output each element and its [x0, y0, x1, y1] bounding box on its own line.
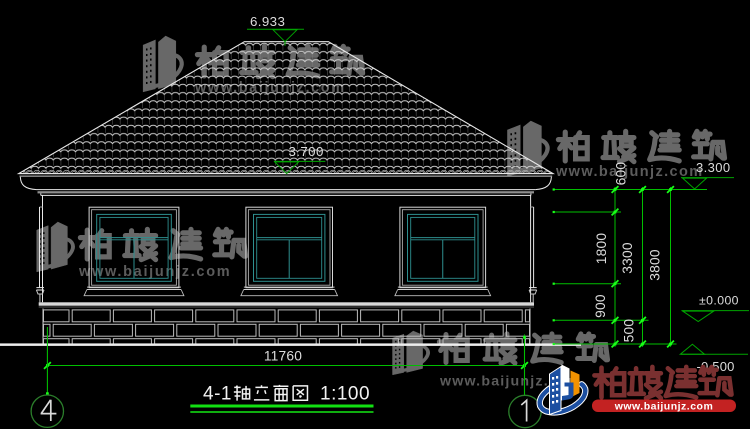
svg-text:500: 500 [622, 319, 637, 343]
svg-text:3.300: 3.300 [696, 160, 731, 175]
svg-text:600: 600 [614, 162, 629, 186]
svg-text:3300: 3300 [620, 242, 635, 274]
svg-text:1:100: 1:100 [320, 384, 370, 405]
svg-text:www.baijunjz.com: www.baijunjz.com [78, 264, 231, 280]
svg-text:4-1: 4-1 [203, 384, 232, 405]
svg-text:www.baijunjz.com: www.baijunjz.com [614, 401, 714, 413]
svg-text:3800: 3800 [648, 249, 663, 281]
svg-text:1800: 1800 [594, 233, 609, 265]
svg-text:11760: 11760 [264, 349, 302, 364]
svg-text:900: 900 [593, 294, 608, 318]
svg-text:6.933: 6.933 [250, 14, 285, 29]
svg-text:3.700: 3.700 [289, 144, 324, 159]
svg-text:±0.000: ±0.000 [699, 294, 739, 308]
